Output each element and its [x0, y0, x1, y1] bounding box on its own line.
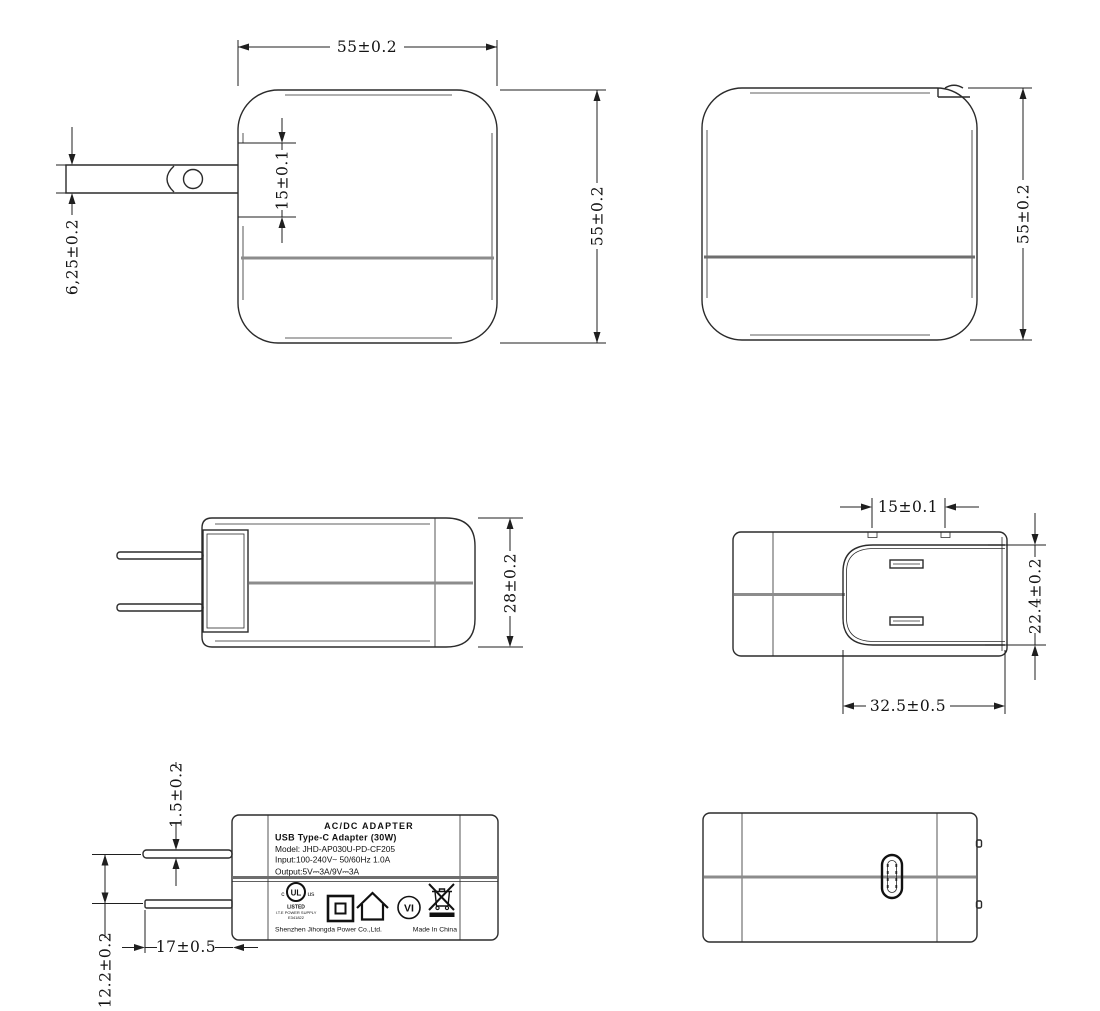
side-view: 28±0.2: [117, 518, 523, 647]
side-plug-blades: [117, 552, 203, 611]
top-plug-recess: [843, 545, 1005, 645]
label-line-model: Model: JHD-AP030U-PD-CF205: [275, 844, 395, 854]
back-case-inner-lines: [707, 93, 972, 335]
weee-crossed-bin-icon: [429, 884, 455, 917]
weee-bar: [430, 913, 455, 918]
dim-blade-length-label: 17±0.5: [156, 938, 216, 956]
front-plug-blade: [66, 165, 238, 193]
ul-monogram: UL: [291, 889, 302, 898]
dim-front-plug-module-label: 15±0.1: [274, 150, 292, 210]
top-plug-recess-inner: [847, 549, 1006, 642]
drawing-sheet: 55±0.2 55±0.2 15±0.1 6,25±0.2 55±0.2: [0, 0, 1100, 1011]
dim-back-height-label: 55±0.2: [1015, 184, 1033, 244]
top-blade-slots: [890, 560, 923, 625]
top-view-dimensions: 15±0.1 22.4±0.2 32.5±0.5: [840, 498, 1046, 715]
technical-drawing: 55±0.2 55±0.2 15±0.1 6,25±0.2 55±0.2: [0, 0, 1100, 1011]
label-view-dimensions: 1.5±0.2 12.2±0.2 17±0.5: [92, 762, 258, 1008]
dim-blade-spacing-label: 12.2±0.2: [97, 932, 115, 1008]
dim-front-width-label: 55±0.2: [337, 38, 397, 56]
dim-top-recess-width-label: 32.5±0.5: [870, 697, 946, 715]
dim-front-blade-width-label: 6,25±0.2: [64, 219, 82, 295]
side-plug-module-inner: [207, 534, 244, 628]
bottom-view: [703, 813, 982, 942]
top-edge-notches: [868, 532, 950, 538]
efficiency-level-vi-icon: VI: [398, 897, 420, 919]
class-ii-insulation-icon: [328, 896, 353, 921]
blade-hole: [184, 170, 203, 189]
side-view-dimensions: 28±0.2: [478, 518, 523, 647]
indoor-use-only-icon: [357, 893, 388, 920]
label-view: AC/DC ADAPTER USB Type-C Adapter (30W) M…: [92, 762, 498, 1008]
ul-file-number: E341822: [288, 915, 305, 920]
top-view: 15±0.1 22.4±0.2 32.5±0.5: [733, 498, 1046, 715]
blade-fold-arc: [167, 166, 174, 192]
ul-c: c: [281, 891, 285, 898]
back-view: 55±0.2: [702, 85, 1033, 340]
dim-top-blade-pitch-label: 15±0.1: [878, 498, 938, 516]
dim-front-height-label: 55±0.2: [589, 186, 607, 246]
dim-blade-thickness-label: 1.5±0.2: [168, 762, 186, 828]
dim-side-thickness-label: 28±0.2: [502, 553, 520, 613]
label-manufacturer: Shenzhen Jihongda Power Co.,Ltd.: [275, 927, 382, 934]
label-line-output: Output:5V⎓3A/9V⎓3A: [275, 867, 360, 877]
label-plug-blades: [143, 850, 232, 908]
ul-listed-icon: UL c us LISTED I.T.E POWER SUPPLY E34182…: [276, 883, 317, 920]
front-view-dimensions: 55±0.2 55±0.2 15±0.1 6,25±0.2: [56, 38, 607, 343]
label-line-product: AC/DC ADAPTER: [324, 821, 414, 831]
label-line-type: USB Type-C Adapter (30W): [275, 833, 397, 843]
ul-us: us: [308, 891, 316, 898]
front-view: 55±0.2 55±0.2 15±0.1 6,25±0.2: [56, 38, 607, 343]
label-line-input: Input:100-240V~ 50/60Hz 1.0A: [275, 855, 391, 865]
dim-top-recess-depth-label: 22.4±0.2: [1027, 558, 1045, 634]
back-body-outline: [702, 88, 977, 340]
efficiency-mark-text: VI: [404, 903, 414, 915]
label-origin: Made In China: [413, 927, 457, 934]
side-plug-module: [203, 530, 248, 632]
